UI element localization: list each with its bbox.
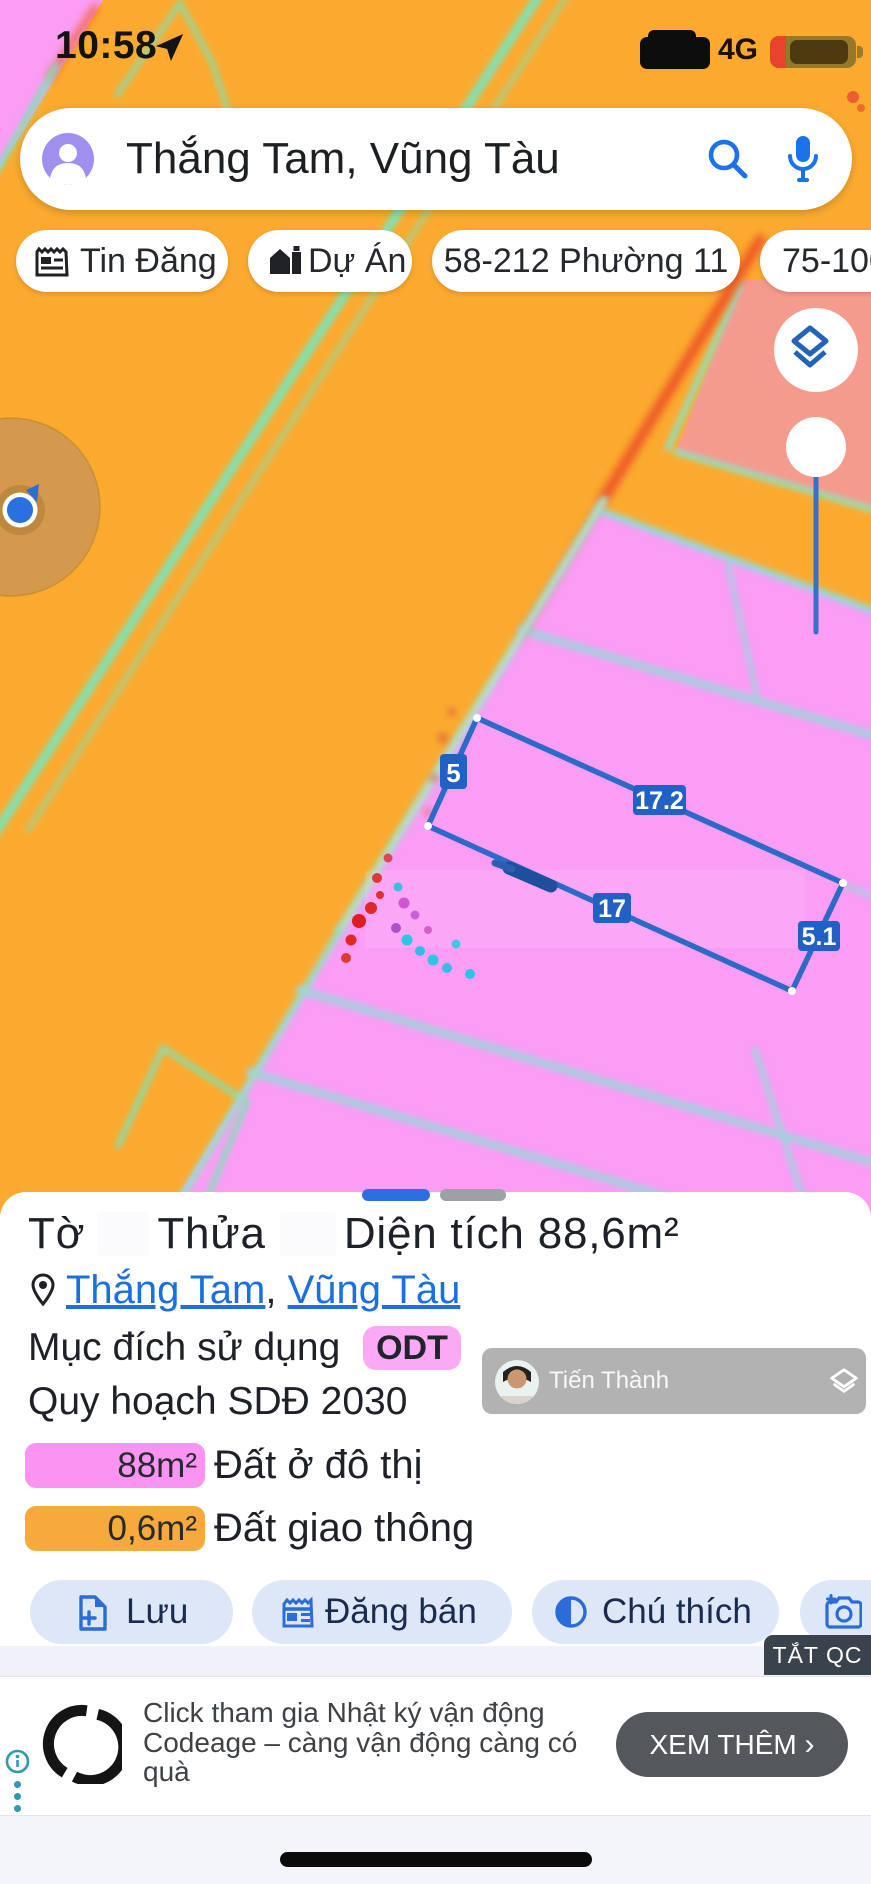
svg-text:5: 5 bbox=[446, 758, 460, 788]
svg-text:17.2: 17.2 bbox=[635, 787, 684, 815]
svg-text:5.1: 5.1 bbox=[802, 923, 837, 951]
svg-text:17: 17 bbox=[598, 895, 626, 923]
